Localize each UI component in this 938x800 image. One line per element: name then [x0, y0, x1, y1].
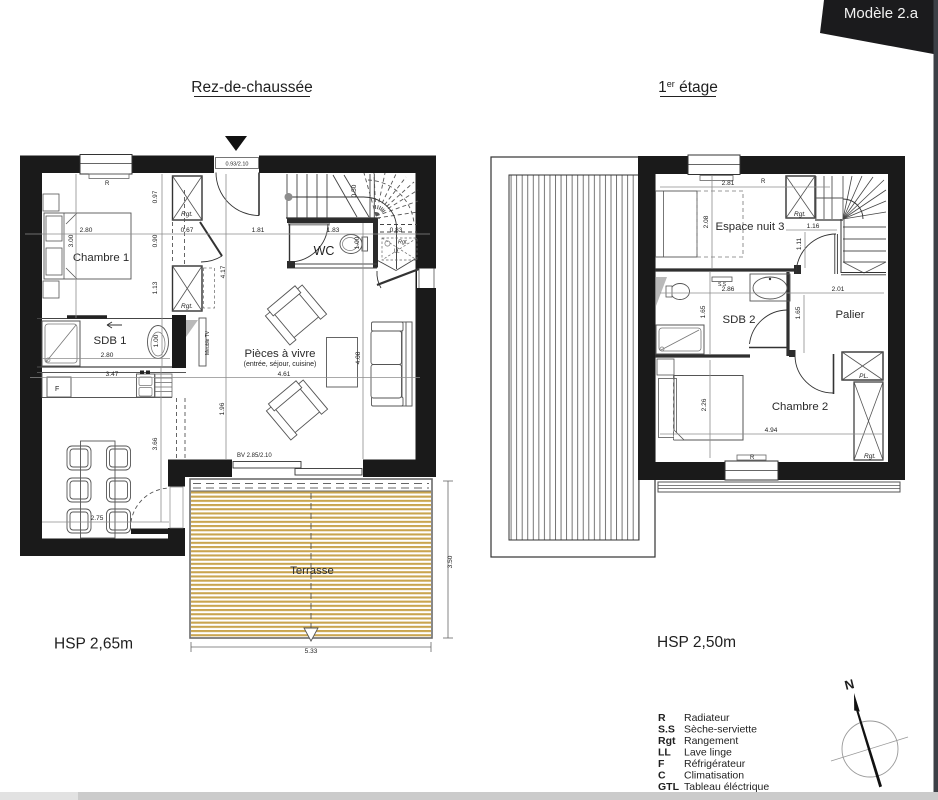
svg-text:1.83: 1.83	[327, 227, 340, 234]
svg-text:2.08: 2.08	[703, 215, 710, 228]
svg-text:Chambre 1: Chambre 1	[73, 252, 129, 264]
svg-text:Réfrigérateur: Réfrigérateur	[684, 758, 746, 770]
svg-text:GTL: GTL	[658, 781, 680, 793]
svg-text:Terrasse: Terrasse	[290, 565, 334, 577]
svg-text:Climatisation: Climatisation	[684, 770, 744, 782]
svg-text:4.17: 4.17	[220, 265, 227, 278]
svg-text:1.81: 1.81	[252, 227, 265, 234]
svg-text:Tableau éléctrique: Tableau éléctrique	[684, 781, 769, 793]
svg-text:1.96: 1.96	[219, 402, 226, 415]
svg-text:Pièces à vivre: Pièces à vivre	[245, 348, 316, 360]
svg-text:R: R	[658, 712, 666, 724]
svg-text:1.00: 1.00	[153, 334, 160, 347]
svg-text:2.75: 2.75	[91, 515, 104, 522]
svg-text:1.65: 1.65	[795, 306, 802, 319]
svg-text:0.83: 0.83	[390, 227, 403, 234]
svg-text:Modèle 2.a: Modèle 2.a	[844, 5, 919, 22]
svg-text:HSP 2,50m: HSP 2,50m	[657, 634, 736, 651]
svg-text:R: R	[105, 181, 110, 187]
svg-text:0.50: 0.50	[351, 184, 358, 197]
svg-text:4.08: 4.08	[355, 351, 362, 364]
svg-text:F: F	[55, 386, 59, 393]
svg-text:Rgt.: Rgt.	[794, 211, 806, 218]
svg-text:3.66: 3.66	[152, 437, 159, 450]
svg-text:R: R	[761, 179, 766, 185]
svg-text:R: R	[750, 455, 755, 461]
svg-text:(entrée, séjour, cuisine): (entrée, séjour, cuisine)	[244, 361, 317, 368]
svg-text:Rangement: Rangement	[684, 735, 738, 747]
svg-text:4.61: 4.61	[278, 371, 291, 378]
svg-text:2.01: 2.01	[832, 286, 845, 293]
svg-text:2.86: 2.86	[722, 286, 735, 293]
svg-text:3.47: 3.47	[106, 371, 119, 378]
svg-text:C: C	[658, 770, 666, 782]
svg-text:2.81: 2.81	[722, 180, 735, 187]
svg-text:3.50: 3.50	[447, 555, 454, 568]
svg-text:0.67: 0.67	[181, 227, 194, 234]
svg-text:1.65: 1.65	[700, 305, 707, 318]
svg-text:Rgt: Rgt	[658, 735, 676, 747]
svg-text:LL: LL	[658, 747, 671, 759]
svg-text:S.S: S.S	[658, 724, 675, 736]
svg-text:Lave linge: Lave linge	[684, 747, 732, 759]
svg-text:Radiateur: Radiateur	[684, 712, 730, 724]
svg-text:1.16: 1.16	[807, 223, 820, 230]
svg-text:Palier: Palier	[835, 309, 864, 321]
svg-text:SDB 2: SDB 2	[723, 314, 756, 326]
svg-text:0.90: 0.90	[152, 234, 159, 247]
svg-text:PL.: PL.	[859, 373, 869, 380]
svg-text:Espace nuit 3: Espace nuit 3	[715, 221, 784, 233]
svg-text:SDB 1: SDB 1	[94, 335, 127, 347]
svg-text:Rgt.: Rgt.	[181, 211, 193, 218]
svg-text:2.80: 2.80	[101, 352, 114, 359]
svg-text:0.93/2.10: 0.93/2.10	[226, 162, 249, 168]
svg-text:Rez-de-chaussée: Rez-de-chaussée	[191, 79, 312, 96]
svg-text:5.33: 5.33	[305, 648, 318, 655]
svg-text:1.00: 1.00	[354, 236, 361, 249]
svg-text:HSP 2,65m: HSP 2,65m	[54, 636, 133, 653]
svg-text:Sèche-serviette: Sèche-serviette	[684, 724, 757, 736]
svg-text:Chambre 2: Chambre 2	[772, 401, 828, 413]
svg-text:3.00: 3.00	[68, 234, 75, 247]
svg-text:Rgt.: Rgt.	[181, 303, 193, 310]
svg-text:BV 2.85/2.10: BV 2.85/2.10	[237, 453, 272, 459]
svg-text:F: F	[658, 758, 665, 770]
svg-text:LL: LL	[394, 249, 400, 255]
svg-text:Meuble TV: Meuble TV	[205, 330, 211, 355]
svg-text:Rgt.: Rgt.	[864, 453, 876, 460]
svg-text:1.13: 1.13	[152, 281, 159, 294]
svg-text:2.80: 2.80	[80, 227, 93, 234]
svg-text:0.97: 0.97	[152, 190, 159, 203]
svg-text:1.11: 1.11	[796, 238, 803, 251]
svg-text:Rgt.: Rgt.	[398, 240, 408, 246]
svg-text:4.94: 4.94	[765, 427, 778, 434]
svg-text:2.26: 2.26	[701, 398, 708, 411]
svg-text:WC: WC	[314, 244, 335, 258]
